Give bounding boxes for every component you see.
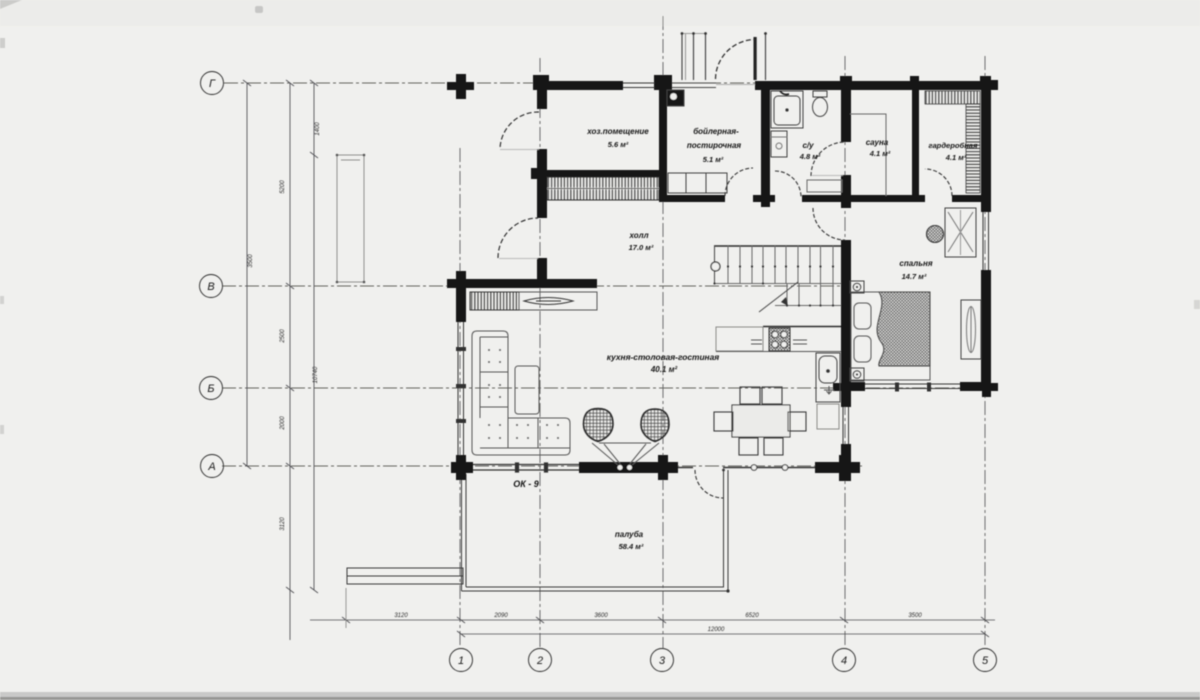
svg-text:4: 4: [841, 655, 847, 667]
svg-text:2: 2: [536, 655, 543, 667]
svg-text:А: А: [207, 461, 215, 473]
svg-text:сауна: сауна: [866, 138, 889, 147]
svg-text:палуба: палуба: [615, 530, 644, 539]
svg-text:ОК - 9: ОК - 9: [513, 479, 539, 489]
svg-text:6520: 6520: [745, 613, 759, 619]
svg-text:1: 1: [458, 655, 464, 667]
svg-text:2090: 2090: [493, 613, 508, 619]
svg-text:Г: Г: [209, 78, 216, 90]
svg-text:2500: 2500: [280, 329, 286, 344]
svg-text:3120: 3120: [394, 613, 408, 619]
svg-text:2000: 2000: [280, 416, 286, 431]
svg-text:4.1 м²: 4.1 м²: [945, 153, 967, 162]
svg-text:3120: 3120: [280, 517, 286, 531]
svg-text:Б: Б: [207, 383, 214, 395]
svg-text:14.7 м²: 14.7 м²: [902, 272, 927, 281]
svg-text:40.1 м²: 40.1 м²: [650, 365, 678, 374]
svg-text:холл: холл: [628, 231, 648, 240]
svg-text:58.4 м²: 58.4 м²: [619, 542, 644, 551]
svg-text:12000: 12000: [708, 627, 725, 633]
svg-text:В: В: [207, 281, 214, 293]
svg-text:с/у: с/у: [802, 141, 814, 150]
svg-text:4.8 м²: 4.8 м²: [799, 152, 821, 161]
svg-text:гардеробная: гардеробная: [929, 141, 979, 150]
svg-text:3600: 3600: [594, 613, 608, 619]
svg-text:3: 3: [659, 655, 666, 667]
svg-text:3500: 3500: [248, 254, 254, 268]
svg-text:3500: 3500: [908, 613, 922, 619]
svg-text:бойлерная-: бойлерная-: [693, 127, 739, 136]
svg-text:постирочная: постирочная: [687, 141, 742, 150]
svg-text:10740: 10740: [313, 366, 319, 383]
svg-text:17.0 м²: 17.0 м²: [629, 243, 654, 252]
svg-text:5: 5: [982, 655, 989, 667]
svg-text:кухня-столовая-гостиная: кухня-столовая-гостиная: [607, 352, 720, 362]
svg-text:спальня: спальня: [899, 259, 932, 268]
svg-text:5.6 м²: 5.6 м²: [608, 140, 629, 149]
svg-text:5.1 м²: 5.1 м²: [703, 155, 724, 164]
svg-text:4.1 м²: 4.1 м²: [869, 149, 891, 158]
svg-text:1400: 1400: [315, 122, 321, 136]
svg-text:хоз.помещение: хоз.помещение: [586, 127, 649, 136]
svg-text:5200: 5200: [280, 180, 286, 194]
